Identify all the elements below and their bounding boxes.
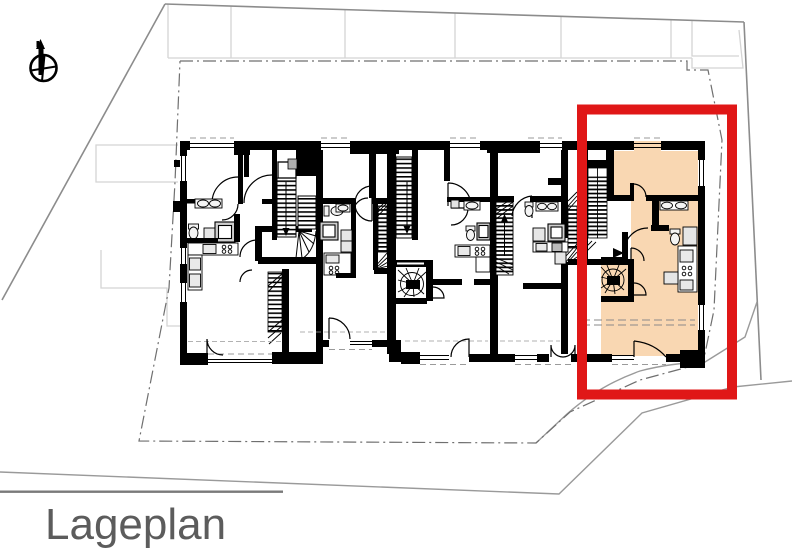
svg-text:Lageplan: Lageplan: [45, 500, 226, 549]
